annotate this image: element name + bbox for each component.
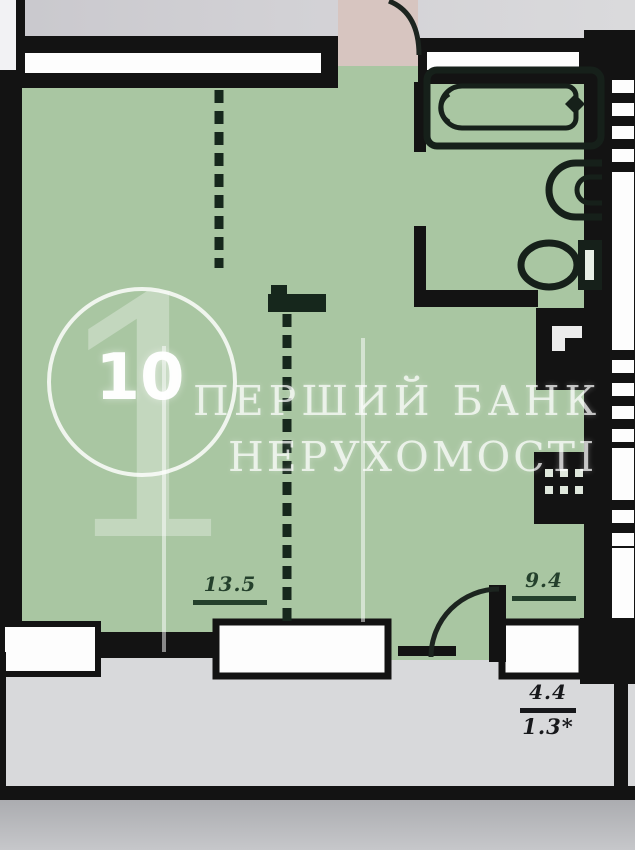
dimension-balcony: 4.4: [516, 680, 580, 704]
dimension-balcony-reduced: 1.3*: [512, 714, 584, 739]
balcony-divider: [614, 650, 628, 790]
wall-left: [0, 70, 22, 660]
unit-number: 10: [78, 346, 202, 410]
partition-stub-notch: [271, 285, 287, 297]
balcony-door-leaf: [489, 585, 506, 662]
dimension-underline: [520, 708, 576, 713]
watermark-text-line1: ПЕРШИЙ БАНК: [193, 377, 601, 425]
wall-bathroom-left-lower: [414, 226, 426, 298]
wall-bottom-sill: [398, 646, 456, 656]
dimension-kitchen: 9.4: [508, 568, 580, 592]
floor-plan: 13.5 9.4 4.4 1.3* 1 10 ПЕРШИЙ БАНК НЕРУХ…: [0, 0, 635, 850]
balcony-outer-wall: [0, 786, 635, 800]
wall-bathroom-bottom: [414, 290, 538, 307]
dimension-kitchen-value: 9.4: [525, 568, 563, 592]
dimension-underline: [512, 596, 576, 601]
window-bottom-right: [502, 622, 582, 676]
dimension-balcony-reduced-value: 1.3*: [522, 714, 574, 739]
entry-door-swing-arc: [389, 1, 419, 55]
balcony-left-edge: [0, 652, 6, 788]
toilet-icon: [521, 240, 602, 290]
window-bottom-center: [216, 622, 388, 676]
window-top: [25, 53, 321, 73]
watermark-text-line2: НЕРУХОМОСТІ: [228, 433, 597, 481]
window-bottom-left: [2, 624, 98, 674]
dimension-balcony-value: 4.4: [529, 680, 567, 704]
